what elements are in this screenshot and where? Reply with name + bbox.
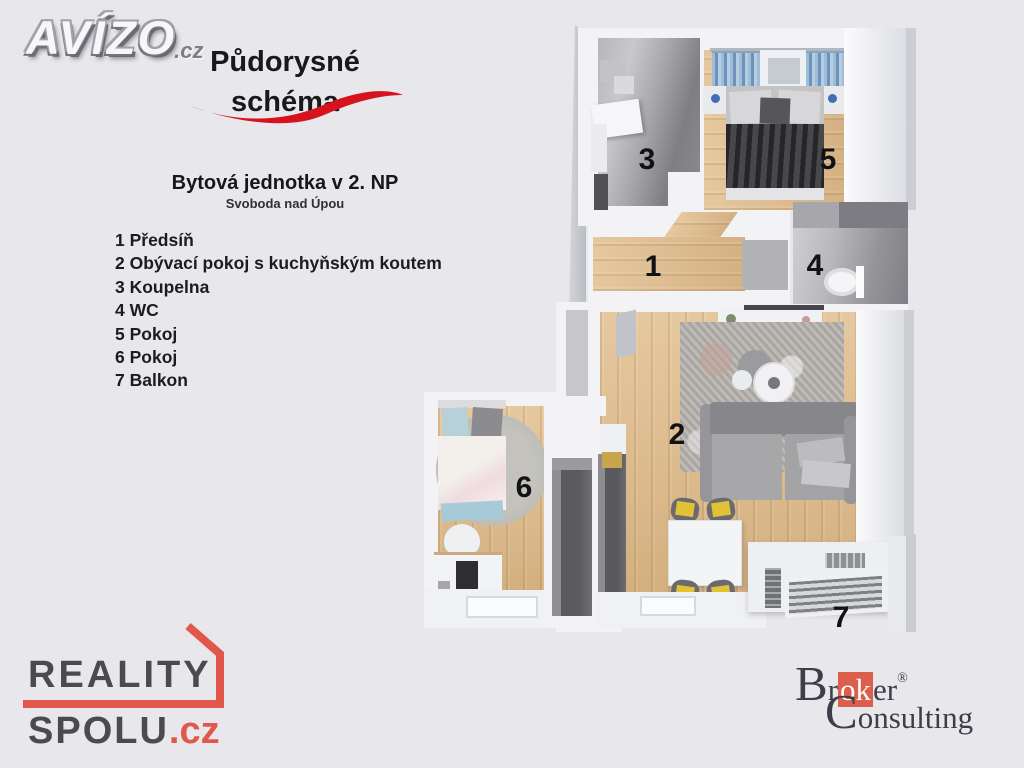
bathroom-sink [591,124,607,172]
room-label-bathroom: 3 [639,143,656,177]
living-east-wall [856,310,904,548]
bedroom-bed [726,86,824,200]
bathroom-door-opening [668,172,700,206]
reality-spolu-word2-text: SPOLU [28,710,169,752]
avizo-logo: AVÍZO.cz [26,10,204,65]
wall-east-outer-top [906,28,916,210]
wardrobe-top [552,458,592,470]
sofa-back [710,402,858,436]
room-label-room6: 6 [516,471,533,505]
bedroom-north-wall [704,28,846,50]
legend-item-5: 5 Pokoj [115,323,442,346]
room6-pillow-gray [471,407,503,439]
room6-desk [434,552,502,595]
balcony-east-wall [888,536,908,632]
floor-plan: 3 5 1 [420,20,920,660]
unit-heading: Bytová jednotka v 2. NP [130,172,440,195]
bed-blanket [726,124,824,190]
page: AVÍZO.cz Půdorysné schéma Bytová jednotk… [0,0,1024,768]
legend-item-3: 3 Koupelna [115,276,442,299]
broker-line2: Consulting [825,697,973,733]
wc-toilet-tank [856,266,864,298]
living-door-panel [616,310,636,359]
reality-spolu-tld: .cz [169,710,220,752]
broker-consulting-logo: Broker® Consulting [795,662,973,733]
broker-initial: B [795,656,828,711]
room-legend: 1 Předsíň 2 Obývací pokoj s kuchyňským k… [115,229,442,393]
room6-duvet [438,436,506,510]
dining-table [668,520,742,586]
room-hall-floor [593,237,745,291]
sofa-pillow-2 [801,460,851,488]
legend-item-6: 6 Pokoj [115,346,442,369]
reality-spolu-word1: REALITY [28,654,212,697]
wc-toilet-bowl [824,268,860,296]
nightstand-left-lamp [711,94,720,103]
room6-bed-headboard [438,400,506,408]
living-tv-bar [744,305,824,310]
room-label-living: 2 [669,418,686,452]
balcony-grille [765,568,781,608]
room6-window-sill [466,596,538,618]
nightstand-right-lamp [828,94,837,103]
sofa-seat-left [712,434,782,500]
legend-item-1: 1 Předsíň [115,229,442,252]
coffee-table-small [732,370,752,390]
kitchen-tall-unit [598,454,626,614]
unit-subheading: Svoboda nad Úpou [130,196,440,211]
wardrobe [552,458,592,616]
room-label-hall: 1 [645,250,662,284]
consulting-initial: C [825,684,858,739]
registered-mark: ® [897,671,908,686]
legend-item-7: 7 Balkon [115,369,442,392]
room-label-bedroom: 5 [820,143,837,177]
kitchen-unit-top-item [602,452,622,468]
wall-west-outer-lower [566,310,588,404]
room6-bed [438,400,506,522]
bed-pillow-center [760,97,791,124]
room6-desk-item [438,581,450,589]
coffee-table-center-decor [768,377,780,389]
bed-foot-board [726,188,824,200]
wall-east-outer-bottom [906,534,916,632]
avizo-wordmark: AVÍZO [26,11,176,64]
reality-spolu-logo: REALITY SPOLU.cz [20,622,255,764]
dining-chair-1-seat [675,501,695,517]
page-title-line1: Půdorysné [185,42,385,82]
living-window-sill [640,596,696,616]
legend-item-2: 2 Obývací pokoj s kuchyňským koutem [115,252,442,275]
hall-concrete-corner [742,240,788,290]
bathroom-shelf [614,76,634,94]
room-label-wc: 4 [807,249,824,283]
room6-monitor [456,561,478,589]
title-swoosh-icon [183,86,405,124]
wall-east-outer-mid [904,310,914,548]
bedroom-east-wall [844,28,906,210]
balcony-table [825,553,865,568]
room-label-balcony: 7 [833,601,850,635]
living-sofa [700,402,858,506]
bedroom-window-glass [768,58,800,84]
reality-spolu-word2: SPOLU.cz [28,710,220,753]
dining-chair-2-seat [711,501,731,517]
room6-pillow-blue [441,407,469,437]
room6-blanket-foot [441,500,504,521]
consulting-rest: onsulting [858,700,973,735]
legend-item-4: 4 WC [115,299,442,322]
wall-band-dark [793,202,908,228]
